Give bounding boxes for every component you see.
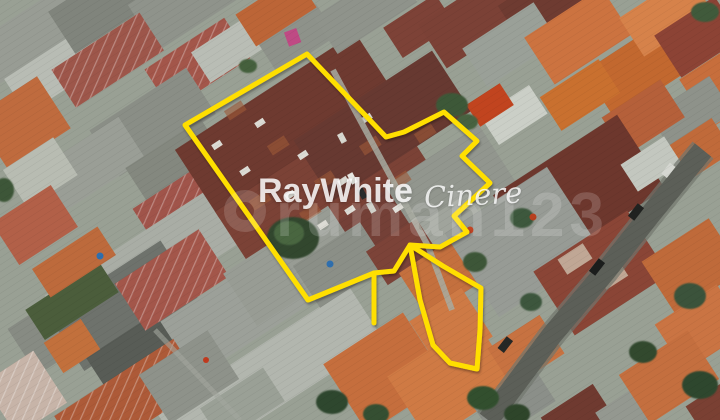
aerial-photo: rumah123 RayWhite Cinere [0, 0, 720, 420]
corrugation-texture [0, 0, 720, 420]
aerial-photo-scene [0, 0, 720, 420]
